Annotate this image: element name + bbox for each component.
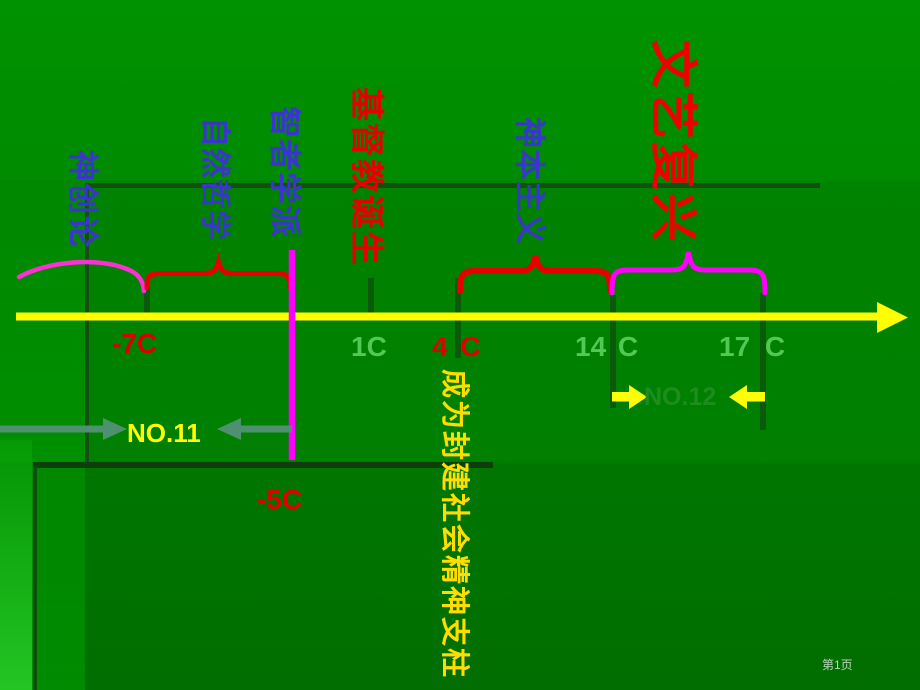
page-number: 第1页 (822, 659, 853, 671)
no12-left-pointing-arrow-shaft (747, 392, 765, 402)
no12-right-pointing-arrow-shaft (612, 392, 629, 402)
annotation-no12: NO.12 (644, 385, 716, 410)
axis-label-14c: 14 C (575, 333, 638, 361)
no11-right-arrow-shaft (241, 426, 292, 433)
caption-feudal-spiritual-pillar: 成为封建社会精神支柱 (439, 369, 468, 679)
annotation-no11: NO.11 (127, 420, 201, 446)
natural-philosophy-brace (147, 262, 290, 288)
panel-border-vertical-lower (33, 466, 37, 690)
panel-border-horizontal-upper (86, 183, 820, 188)
era-label-sophists: 智者学派 (269, 106, 301, 238)
no12-left-pointing-arrow-icon (729, 385, 747, 409)
axis-label-4c: 4 C (432, 333, 481, 361)
renaissance-brace (612, 252, 765, 293)
no11-left-pointing-arrow-icon (217, 418, 241, 440)
axis-label-minus5c: -5C (257, 486, 302, 514)
no11-right-pointing-arrow-icon (103, 418, 127, 440)
era-label-theocentrism: 神本主义 (514, 117, 545, 245)
axis-label-1c: 1C (351, 333, 387, 361)
background-corner-highlight (0, 440, 32, 690)
axis-label-17c: 17 C (719, 333, 785, 361)
era-label-christianity-birth: 基督教诞生 (349, 87, 383, 267)
timeline-arrowhead-icon (877, 302, 908, 333)
slide: 神创论 自然哲学 智者学派 基督教诞生 神本主义 文艺复兴 成为封建社会精神支柱… (0, 0, 920, 690)
panel-border-horizontal-lower (33, 462, 493, 468)
theocentrism-brace (460, 256, 610, 291)
era-label-creationism: 神创论 (67, 150, 98, 249)
timeline-axis (16, 313, 878, 321)
axis-label-minus7c: -7C (112, 330, 157, 358)
era-label-natural-philosophy: 自然哲学 (199, 117, 229, 241)
era-label-renaissance: 文艺复兴 (648, 40, 696, 244)
